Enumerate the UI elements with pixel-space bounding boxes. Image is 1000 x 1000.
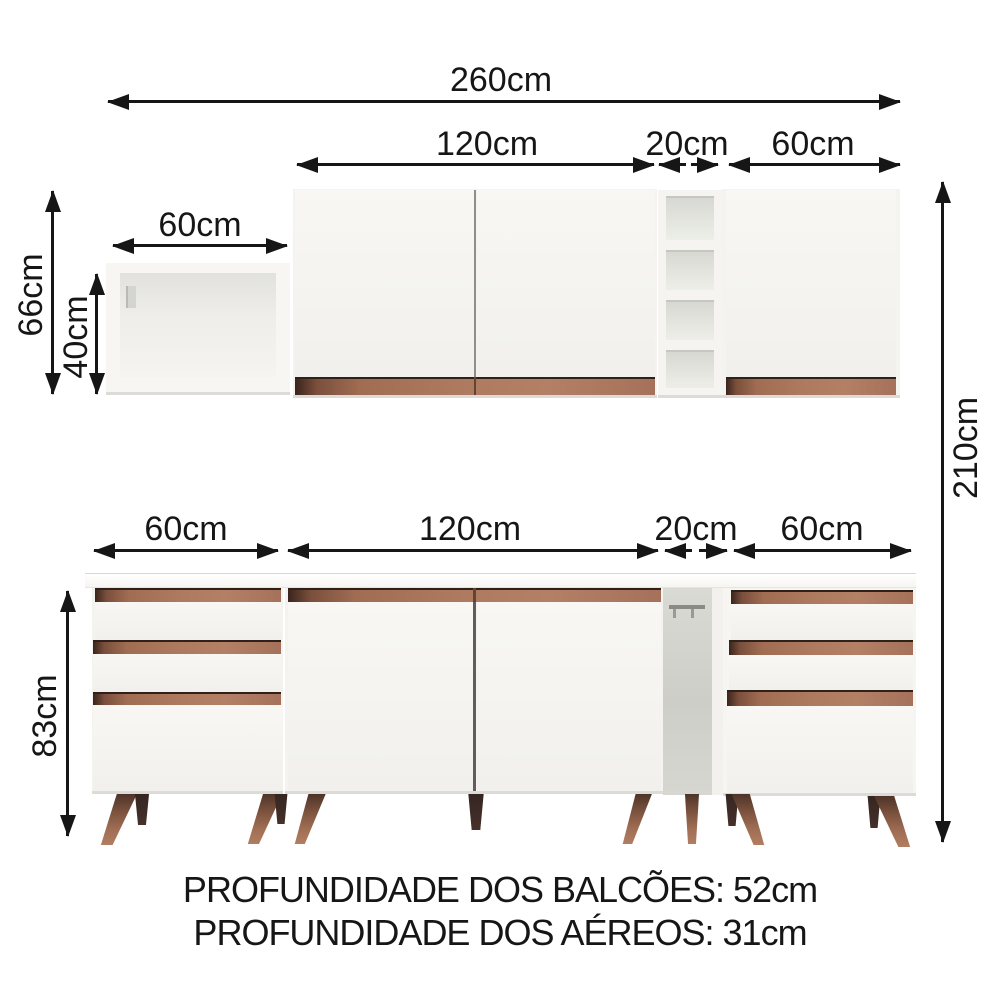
arrowhead-left-icon xyxy=(93,543,115,559)
arrowhead-up-icon xyxy=(60,590,76,612)
arrowhead-left-icon xyxy=(112,238,134,254)
arrowhead-down-icon xyxy=(935,821,951,843)
dim-lower-left-width-label: 60cm xyxy=(144,512,227,546)
door-gap-line xyxy=(474,190,476,378)
strip-gap-line xyxy=(473,588,476,602)
lower-center-cabinet-right-door xyxy=(477,602,661,793)
upper-small-cabinet-interior xyxy=(120,273,276,377)
drawer-handle-strip xyxy=(93,692,281,705)
lower-niche-width-arrow-left xyxy=(665,549,692,552)
cabinet-leg xyxy=(622,794,656,844)
drawer-handle-strip xyxy=(727,690,913,706)
dim-upper-niche-width-label: 20cm xyxy=(645,127,728,161)
upper-row-height-arrow xyxy=(51,191,54,394)
drawer-front xyxy=(93,705,283,793)
arrowhead-right-icon xyxy=(879,94,901,110)
hinge-detail xyxy=(126,286,136,308)
dim-lower-center-width-label: 120cm xyxy=(419,512,521,546)
rail-hook xyxy=(691,609,694,618)
arrowhead-right-icon xyxy=(266,238,288,254)
arrowhead-up-icon xyxy=(935,181,951,203)
arrowhead-right-icon xyxy=(257,543,279,559)
upper-niche-opening-3 xyxy=(666,300,714,340)
dim-lower-niche-width-label: 20cm xyxy=(654,512,737,546)
lower-center-cabinet-width-arrow xyxy=(288,549,658,552)
cabinet-leg xyxy=(681,794,703,844)
dim-upper-cabinet-width-label: 120cm xyxy=(436,127,538,161)
lower-row-height-arrow xyxy=(66,591,69,836)
drawer-front xyxy=(727,706,913,793)
lower-right-cabinet-width-arrow xyxy=(734,549,911,552)
drawer-front xyxy=(93,654,281,692)
upper-right-cabinet-handle-strip xyxy=(726,377,896,395)
upper-small-cabinet-width-arrow xyxy=(113,244,287,247)
rail-hook xyxy=(673,609,676,618)
drawer-handle-strip xyxy=(731,590,913,604)
countertop xyxy=(85,573,916,588)
dim-small-cabinet-height-label: 40cm xyxy=(59,295,93,378)
upper-center-cabinet-right-door xyxy=(477,190,655,378)
upper-niche-width-arrow-right xyxy=(691,163,718,166)
door-gap-line xyxy=(473,602,476,793)
drawer-front xyxy=(95,602,281,640)
lower-left-cabinet-width-arrow xyxy=(94,549,278,552)
upper-small-cabinet-height-arrow xyxy=(95,274,98,394)
arrowhead-left-icon xyxy=(287,543,309,559)
cabinet-leg xyxy=(464,794,488,830)
kitchen-cabinet-dimension-diagram: 260cm 120cm 20cm 60cm 60cm 66cm 40cm 210… xyxy=(0,0,1000,1000)
lower-center-cabinet-left-door xyxy=(288,602,473,793)
dim-small-cabinet-width-label: 60cm xyxy=(158,208,241,242)
arrowhead-left-icon xyxy=(107,94,129,110)
cabinet-bottom-shadow xyxy=(285,791,663,794)
upper-cabinet-width-arrow xyxy=(297,163,654,166)
dim-lower-right-width-label: 60cm xyxy=(780,512,863,546)
lower-niche-side-frame xyxy=(712,588,723,795)
arrowhead-left-icon xyxy=(728,157,750,173)
strip-gap-line xyxy=(474,377,476,395)
depth-note-aereos: PROFUNDIDADE DOS AÉREOS: 31cm xyxy=(193,914,806,952)
arrowhead-up-icon xyxy=(89,273,105,295)
dim-total-height-label: 210cm xyxy=(949,397,983,499)
total-height-arrow xyxy=(941,182,944,842)
arrowhead-down-icon xyxy=(60,815,76,837)
cabinet-leg xyxy=(100,794,142,845)
arrowhead-left-icon xyxy=(296,157,318,173)
cabinet-bottom-shadow xyxy=(92,791,283,794)
arrowhead-up-icon xyxy=(45,190,61,212)
upper-niche-opening-1 xyxy=(666,196,714,240)
dim-upper-right-width-label: 60cm xyxy=(771,127,854,161)
upper-center-cabinet-left-door xyxy=(295,190,474,378)
upper-right-cabinet-door xyxy=(726,190,896,378)
cabinet-bottom-shadow xyxy=(293,395,657,398)
depth-note-balcoes: PROFUNDIDADE DOS BALCÕES: 52cm xyxy=(183,871,817,909)
lower-niche-width-arrow-right xyxy=(699,549,727,552)
total-width-arrow xyxy=(108,100,900,103)
lower-niche-interior xyxy=(663,588,712,795)
drawer-handle-strip xyxy=(95,588,281,602)
drawer-front xyxy=(729,655,913,690)
dim-lower-row-height-label: 83cm xyxy=(28,674,62,757)
cabinet-bottom-shadow xyxy=(723,793,916,796)
drawer-handle-strip xyxy=(729,640,913,655)
arrowhead-right-icon xyxy=(890,543,912,559)
upper-niche-width-arrow-left xyxy=(659,163,686,166)
cabinet-bottom-shadow xyxy=(106,392,290,395)
drawer-handle-strip xyxy=(93,640,281,654)
dim-total-width-label: 260cm xyxy=(450,63,552,97)
upper-niche-opening-2 xyxy=(666,250,714,290)
drawer-front xyxy=(731,604,913,640)
dim-upper-row-height-label: 66cm xyxy=(14,253,48,336)
cabinet-leg xyxy=(294,794,330,844)
arrowhead-right-icon xyxy=(879,157,901,173)
cabinet-bottom-shadow xyxy=(658,395,722,398)
upper-right-cabinet-width-arrow xyxy=(729,163,900,166)
cabinet-bottom-shadow xyxy=(722,395,900,398)
upper-niche-opening-4 xyxy=(666,350,714,388)
